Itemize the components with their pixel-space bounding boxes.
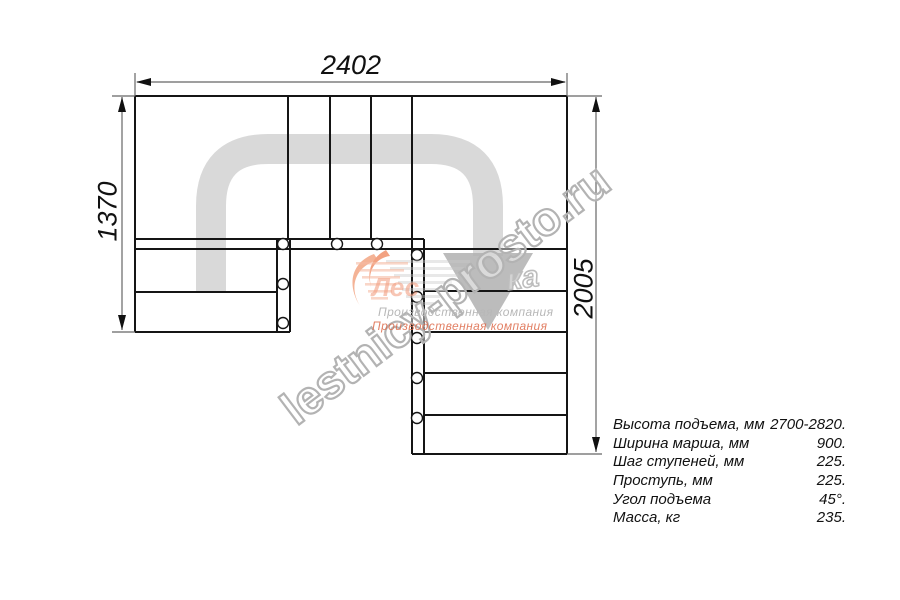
arrow-up-icon: [592, 97, 600, 112]
spec-row: Масса, кг 235.: [613, 509, 846, 528]
logo-brand-fragment: Лес: [372, 272, 419, 303]
spec-value: 225.: [817, 472, 846, 491]
spec-row: Высота подъема, мм 2700-2820.: [613, 416, 846, 435]
spec-row: Угол подъема 45°.: [613, 491, 846, 510]
arrow-down-icon: [118, 315, 126, 330]
spec-value: 45°.: [819, 491, 846, 510]
spec-table: Высота подъема, мм 2700-2820. Ширина мар…: [613, 416, 846, 528]
baluster-icon: [372, 239, 383, 250]
baluster-icon: [278, 239, 289, 250]
logo-tagline-orange: Производственная компания: [372, 319, 547, 333]
spec-label: Шаг ступеней, мм: [613, 453, 744, 472]
logo-ghost-fragment: ка: [504, 260, 541, 297]
spec-row: Ширина марша, мм 900.: [613, 435, 846, 454]
arrow-down-icon: [592, 437, 600, 452]
spec-label: Угол подъема: [613, 491, 711, 510]
baluster-icon: [412, 373, 423, 384]
baluster-icon: [412, 413, 423, 424]
arrow-up-icon: [118, 97, 126, 112]
spec-value: 235.: [817, 509, 846, 528]
dim-height-left: 1370: [93, 152, 124, 272]
spec-label: Высота подъема, мм: [613, 416, 765, 435]
arrow-left-icon: [136, 78, 151, 86]
spec-value: 225.: [817, 453, 846, 472]
spec-label: Масса, кг: [613, 509, 680, 528]
spec-value: 2700-2820.: [770, 416, 846, 435]
spec-row: Проступь, мм 225.: [613, 472, 846, 491]
dim-width-top: 2402: [291, 50, 411, 81]
baluster-icon: [278, 279, 289, 290]
spec-label: Ширина марша, мм: [613, 435, 749, 454]
spec-value: 900.: [817, 435, 846, 454]
spec-row: Шаг ступеней, мм 225.: [613, 453, 846, 472]
baluster-icon: [278, 318, 289, 329]
logo-tagline-gray: Производственная компания: [378, 305, 553, 319]
baluster-icon: [412, 250, 423, 261]
stair-plan-drawing: lestnicy-prosto.ru ка 2402 1370 2005 Лес…: [0, 0, 900, 600]
spec-label: Проступь, мм: [613, 472, 713, 491]
dim-height-right: 2005: [569, 229, 600, 349]
baluster-icon: [332, 239, 343, 250]
arrow-right-icon: [551, 78, 566, 86]
